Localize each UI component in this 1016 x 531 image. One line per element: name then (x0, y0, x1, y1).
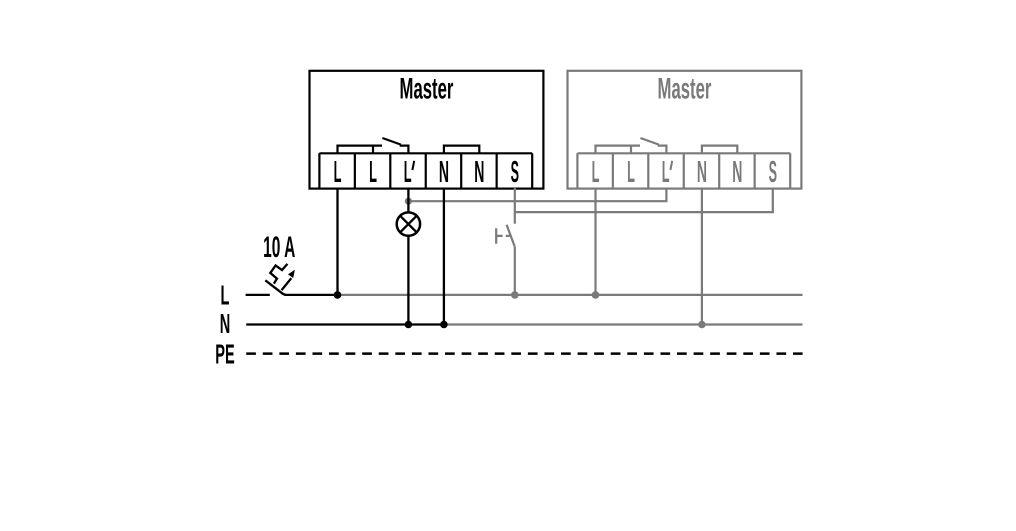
svg-text:L: L (221, 280, 230, 311)
svg-text:PE: PE (215, 338, 234, 369)
svg-text:N: N (220, 308, 231, 339)
svg-text:10 A: 10 A (263, 231, 295, 263)
